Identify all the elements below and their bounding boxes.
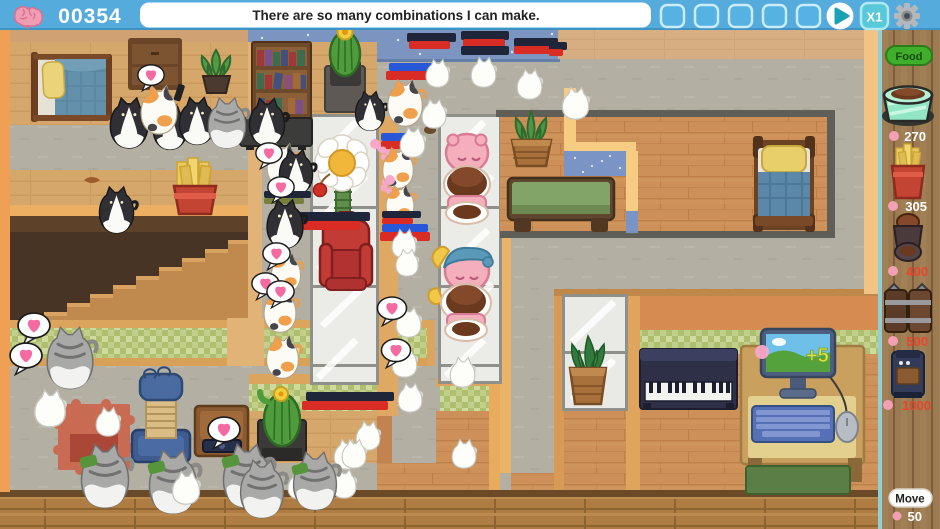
svg-text:500: 500 xyxy=(906,334,928,349)
svg-text:305: 305 xyxy=(905,199,927,214)
svg-text:1000: 1000 xyxy=(902,398,931,413)
svg-text:There are so many combinations: There are so many combinations I can mak… xyxy=(252,8,539,23)
svg-text:+5: +5 xyxy=(806,345,829,367)
svg-text:400: 400 xyxy=(906,264,928,279)
svg-text:Food: Food xyxy=(896,51,923,63)
svg-text:Move: Move xyxy=(895,494,924,506)
svg-text:00354: 00354 xyxy=(58,5,121,28)
svg-text:270: 270 xyxy=(904,129,926,144)
svg-text:X1: X1 xyxy=(867,10,883,25)
svg-text:50: 50 xyxy=(908,509,922,524)
